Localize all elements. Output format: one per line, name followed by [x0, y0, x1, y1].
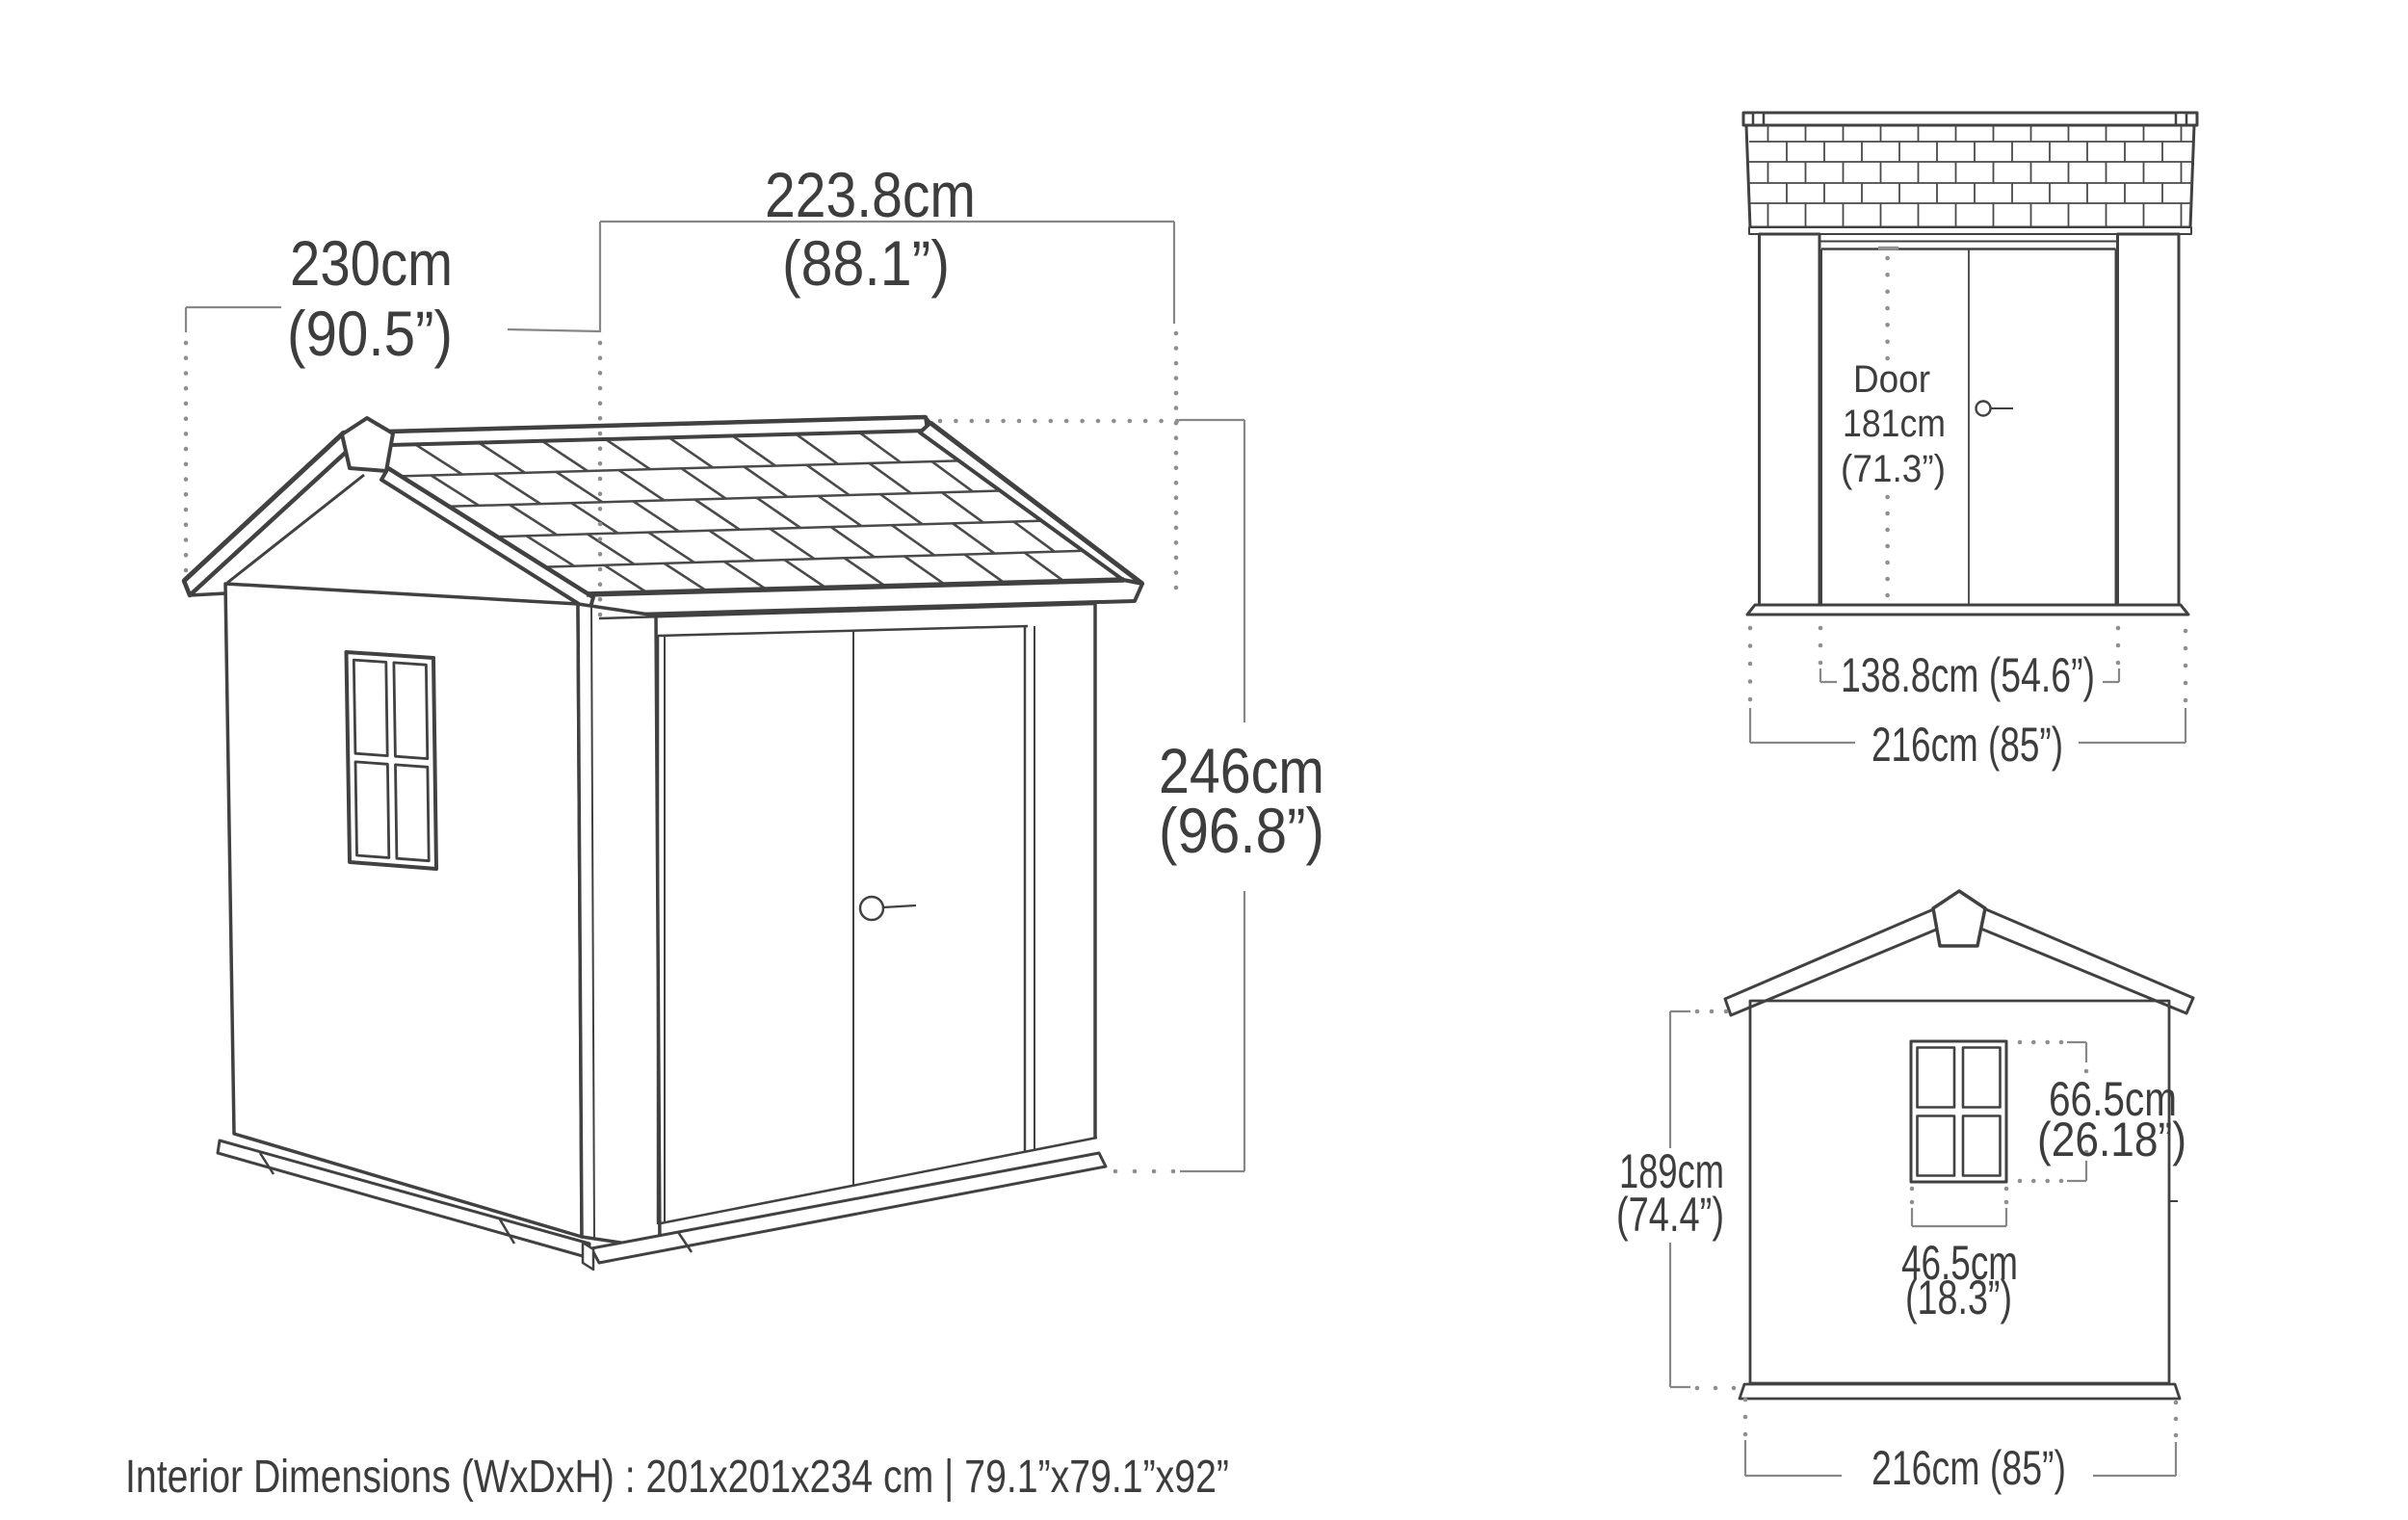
svg-text:216cm (85”): 216cm (85”)	[1871, 1441, 2066, 1495]
svg-text:230cm: 230cm	[290, 227, 453, 299]
svg-text:138.8cm (54.6”): 138.8cm (54.6”)	[1841, 648, 2095, 702]
svg-text:Door: Door	[1853, 358, 1930, 401]
svg-text:(74.4”): (74.4”)	[1616, 1188, 1724, 1242]
svg-text:223.8cm: 223.8cm	[765, 159, 976, 230]
svg-text:(90.5”): (90.5”)	[287, 298, 453, 369]
svg-text:(18.3”): (18.3”)	[1905, 1271, 2012, 1324]
svg-text:(71.3”): (71.3”)	[1841, 448, 1946, 490]
svg-text:216cm (85”): 216cm (85”)	[1871, 718, 2063, 772]
svg-text:181cm: 181cm	[1843, 403, 1946, 445]
svg-text:(26.18”): (26.18”)	[2037, 1113, 2186, 1166]
svg-text:(96.8”): (96.8”)	[1159, 795, 1324, 866]
svg-text:(88.1”): (88.1”)	[782, 227, 950, 299]
svg-text:Interior Dimensions (WxDxH) :: Interior Dimensions (WxDxH) : 201x201x23…	[125, 1452, 1229, 1503]
